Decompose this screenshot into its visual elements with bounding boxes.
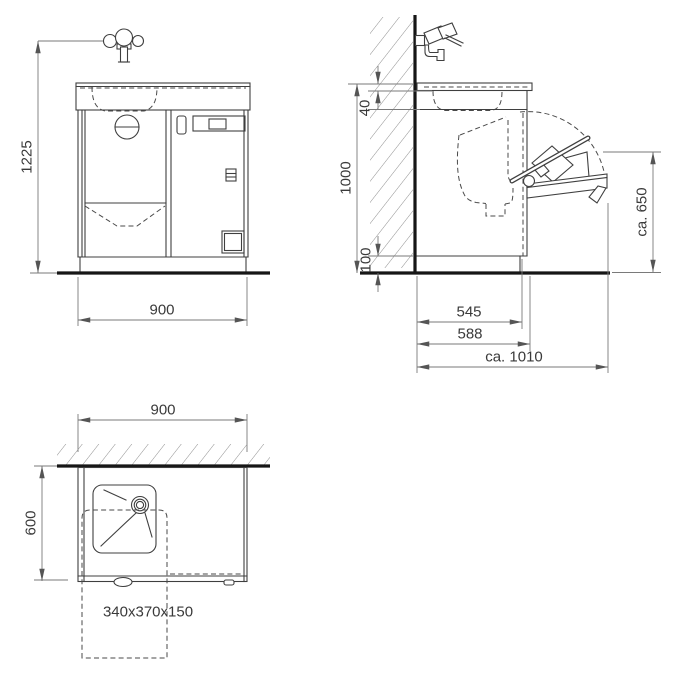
control-panel: [193, 116, 245, 131]
dimension-front-width: 900: [78, 277, 247, 326]
dim-label-front-width: 900: [149, 302, 174, 319]
service-hatch: [222, 231, 244, 253]
dim-label-plinth-height: 100: [358, 247, 375, 272]
wall-hatching-side: [370, 17, 413, 268]
dimension-side-depths: 545 588 ca. 1010: [417, 203, 608, 373]
dim-label-plan-width: 900: [150, 402, 175, 419]
plan-view: 900 340x370x150: [23, 402, 271, 659]
hamper-hidden-outline: [85, 206, 165, 226]
dim-label-front-height: 1225: [19, 140, 36, 173]
fold-out-table: [512, 112, 607, 203]
hinge-plan: [224, 580, 234, 585]
side-view: 40 1000 100 ca. 650 545 588: [338, 15, 662, 373]
dimension-plan-depth: 600: [23, 466, 69, 581]
door-knob: [115, 115, 139, 139]
faucet-side-icon: [416, 23, 464, 61]
wall-hatching-plan: [57, 444, 270, 465]
dim-label-depth-inner: 545: [456, 304, 481, 321]
hinge-point: [524, 176, 535, 187]
dim-label-depth-body: 588: [457, 326, 482, 343]
technical-drawing: 1225 900: [0, 0, 680, 678]
cabinet-front: [76, 83, 250, 272]
dim-label-table-height: ca. 650: [634, 187, 651, 236]
sink-plan: [93, 485, 156, 553]
front-view: 1225 900: [19, 29, 271, 326]
tub-hidden-outline: [457, 117, 513, 216]
dim-label-basin-size: 340x370x150: [103, 604, 193, 621]
faucet-front-icon: [38, 29, 144, 62]
dimension-front-height: 1225: [19, 41, 39, 273]
technical-drawing-page: 1225 900: [0, 0, 680, 678]
dimension-side-height: 1000: [338, 84, 358, 273]
dim-label-side-height: 1000: [338, 161, 355, 194]
dispenser-slot: [177, 116, 186, 134]
vent-detail: [226, 169, 236, 181]
dim-label-worktop-thickness: 40: [357, 100, 374, 117]
dim-label-plan-depth: 600: [23, 510, 40, 535]
sink-hidden-outline-front: [92, 87, 157, 111]
cabinet-plan: [78, 468, 247, 587]
dimension-table-height: ca. 650: [603, 152, 661, 273]
dim-label-depth-open: ca. 1010: [485, 349, 543, 366]
door-handle-plan: [114, 578, 132, 587]
sink-hidden-outline-side: [433, 91, 502, 111]
